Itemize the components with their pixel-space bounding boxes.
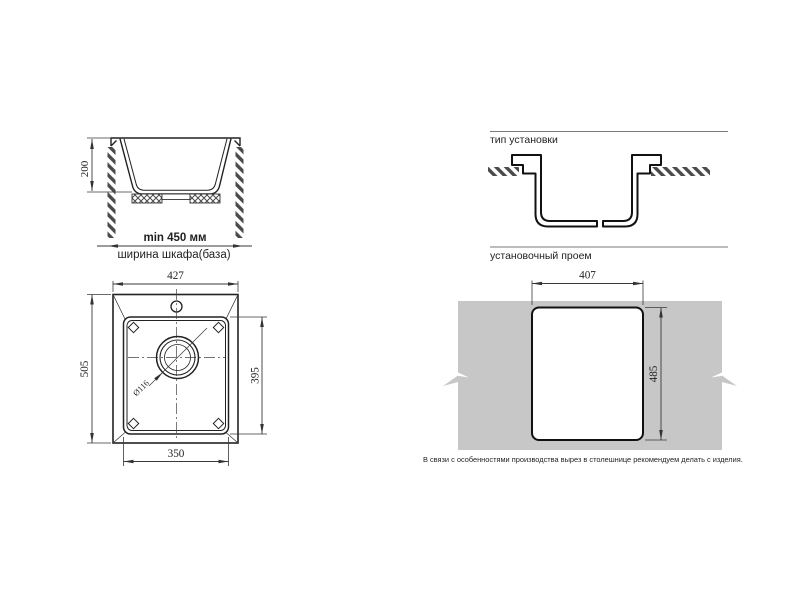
sink-profile-left — [512, 155, 597, 227]
sink-profile-right — [603, 155, 661, 227]
min-width-label: min 450 мм — [143, 232, 206, 244]
cabinet-wall-right — [236, 147, 244, 238]
dim-overall-width: 427 — [113, 270, 238, 292]
installation-type-view: тип установки — [488, 132, 728, 227]
dim-cabinet-width: min 450 мм ширина шкафа(база) — [97, 232, 252, 261]
sink-bowl-inner — [124, 139, 227, 191]
section-view: 200 min 450 мм ширина шкафа(база) — [79, 138, 252, 261]
production-note: В связи с особенностями производства выр… — [423, 455, 743, 464]
sink-bottom-pad-left — [132, 194, 162, 203]
sink-bottom-middle — [162, 194, 190, 200]
installation-type-title: тип установки — [490, 134, 558, 146]
countertop-left — [488, 167, 519, 176]
sink-technical-drawing: 200 min 450 мм ширина шкафа(база) тип ус… — [0, 0, 800, 600]
opening-view: установочный проем 407 485 — [423, 247, 743, 464]
cutout-width-value: 407 — [579, 270, 596, 282]
overall-width-value: 427 — [167, 270, 184, 282]
top-view: Ø116 427 505 395 — [79, 270, 267, 466]
dim-depth-200: 200 — [79, 138, 132, 192]
depth-value: 200 — [79, 160, 91, 177]
sink-bottom-pad-right — [190, 194, 220, 203]
bowl-depth-value: 395 — [250, 367, 262, 384]
countertop-right — [651, 167, 710, 176]
opening-title: установочный проем — [490, 250, 592, 262]
drawing-canvas: 200 min 450 мм ширина шкафа(база) тип ус… — [0, 0, 800, 600]
cabinet-width-label: ширина шкафа(база) — [117, 249, 230, 261]
dim-cutout-width: 407 — [532, 270, 643, 306]
bowl-width-value: 350 — [168, 448, 185, 460]
sink-rim-section — [111, 138, 240, 146]
cabinet-wall-left — [108, 147, 116, 238]
cutout-height-value: 485 — [648, 365, 660, 382]
dim-overall-depth: 505 — [79, 295, 111, 444]
overall-depth-value: 505 — [79, 360, 91, 377]
cutout — [532, 308, 643, 441]
